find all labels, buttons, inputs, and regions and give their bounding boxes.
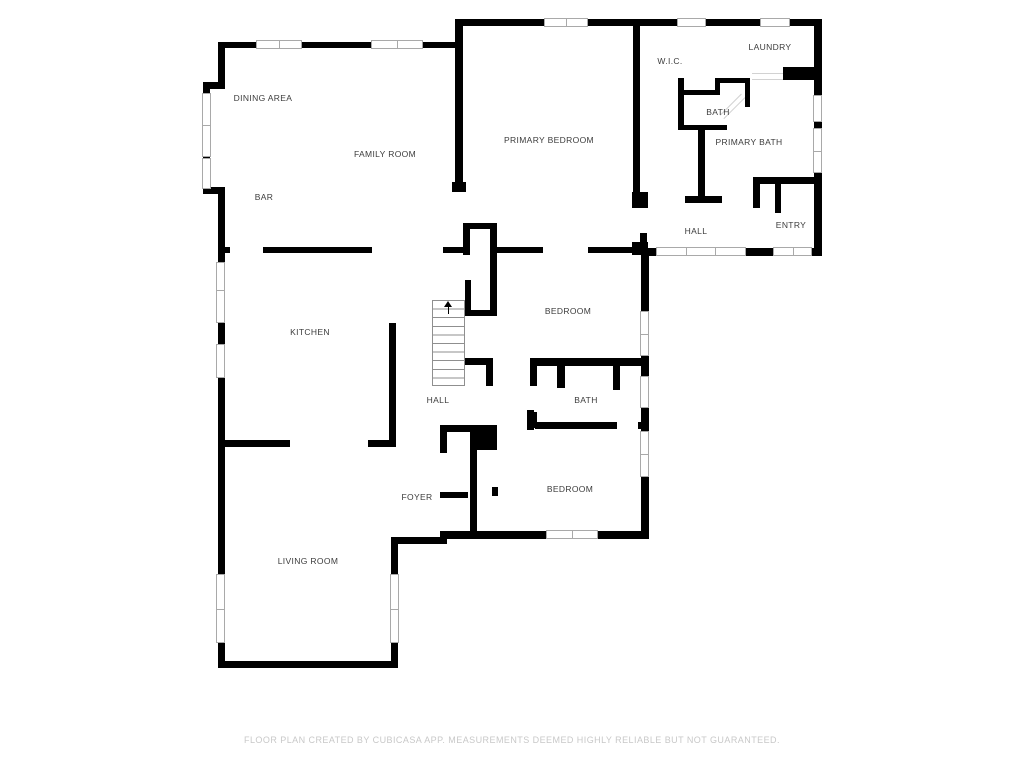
wall-segment: [490, 223, 497, 315]
wall-segment: [218, 440, 290, 447]
room-label-bedroom-lower: BEDROOM: [547, 484, 593, 494]
door-opening: [752, 73, 783, 80]
window: [216, 262, 225, 323]
window: [202, 93, 211, 157]
wall-segment: [527, 410, 534, 430]
window-mullion: [641, 334, 648, 335]
wall-segment: [753, 177, 822, 184]
wall-segment: [588, 247, 632, 253]
wall-segment: [368, 440, 396, 447]
wall-segment: [775, 183, 781, 213]
wall-segment: [613, 366, 620, 390]
room-label-dining-area: DINING AREA: [234, 93, 293, 103]
window: [813, 95, 822, 122]
wall-segment: [753, 177, 760, 208]
door-leaf: [492, 487, 498, 496]
wall-segment: [633, 19, 640, 201]
room-label-hall-middle: HALL: [427, 395, 450, 405]
window: [677, 18, 706, 27]
window: [202, 158, 211, 189]
room-label-bedroom-middle: BEDROOM: [545, 306, 591, 316]
wall-end-cap: [638, 422, 649, 429]
room-label-hall-upper: HALL: [685, 226, 708, 236]
wall-end-cap: [632, 192, 648, 208]
room-label-entry: ENTRY: [776, 220, 806, 230]
wall-segment: [218, 247, 230, 253]
window: [640, 311, 649, 356]
window: [640, 376, 649, 408]
window: [760, 18, 790, 27]
room-label-foyer: FOYER: [401, 492, 432, 502]
room-label-laundry: LAUNDRY: [749, 42, 792, 52]
window-mullion: [814, 151, 821, 152]
wall-end-cap: [452, 182, 466, 192]
wall-segment: [685, 196, 722, 203]
wall-segment: [218, 42, 463, 48]
window-mullion: [686, 248, 687, 255]
window: [773, 247, 812, 256]
wall-segment: [263, 247, 372, 253]
floor-plan: DINING AREA FAMILY ROOM BAR PRIMARY BEDR…: [0, 0, 1024, 767]
wall-segment: [530, 358, 641, 366]
window-mullion: [203, 125, 210, 126]
wall-segment: [678, 90, 720, 95]
room-label-bath-upper: BATH: [706, 107, 729, 117]
room-label-wic: W.I.C.: [657, 56, 682, 66]
wall-segment: [678, 78, 684, 130]
wall-segment: [440, 425, 447, 453]
wall-segment: [486, 358, 493, 386]
window: [216, 344, 225, 378]
window: [656, 247, 746, 256]
wall-segment: [218, 661, 398, 668]
room-label-living-room: LIVING ROOM: [278, 556, 339, 566]
window-mullion: [397, 41, 398, 48]
window-mullion: [641, 454, 648, 455]
wall-segment: [492, 247, 543, 253]
wall-segment: [443, 247, 463, 253]
window-mullion: [715, 248, 716, 255]
wall-segment: [465, 310, 497, 316]
window-mullion: [566, 19, 567, 26]
window: [546, 530, 598, 539]
window-mullion: [572, 531, 573, 538]
window: [813, 128, 822, 173]
wall-filled-block: [470, 425, 497, 450]
window: [640, 431, 649, 477]
room-label-bath-middle: BATH: [574, 395, 597, 405]
room-label-bar: BAR: [255, 192, 274, 202]
wall-segment: [557, 366, 565, 388]
wall-segment: [698, 125, 705, 203]
wall-segment: [530, 358, 537, 386]
wall-segment: [455, 19, 463, 192]
window: [256, 40, 302, 49]
wall-segment: [391, 537, 447, 544]
room-label-kitchen: KITCHEN: [290, 327, 330, 337]
window-mullion: [279, 41, 280, 48]
room-label-primary-bath: PRIMARY BATH: [715, 137, 782, 147]
window: [390, 574, 399, 643]
wall-segment: [440, 531, 649, 539]
window: [544, 18, 588, 27]
door-leaf: [440, 492, 468, 498]
wall-segment: [535, 422, 617, 429]
disclaimer-text: FLOOR PLAN CREATED BY CUBICASA APP. MEAS…: [0, 735, 1024, 745]
wall-segment: [389, 323, 396, 447]
stairs-arrow-stem: [448, 307, 449, 314]
window-mullion: [391, 609, 398, 610]
wall-segment: [745, 78, 750, 107]
window-mullion: [217, 609, 224, 610]
window: [371, 40, 423, 49]
room-label-family-room: FAMILY ROOM: [354, 149, 416, 159]
window-mullion: [217, 290, 224, 291]
room-label-primary-bedroom: PRIMARY BEDROOM: [504, 135, 594, 145]
window: [216, 574, 225, 643]
window-mullion: [793, 248, 794, 255]
wall-segment: [470, 450, 477, 538]
